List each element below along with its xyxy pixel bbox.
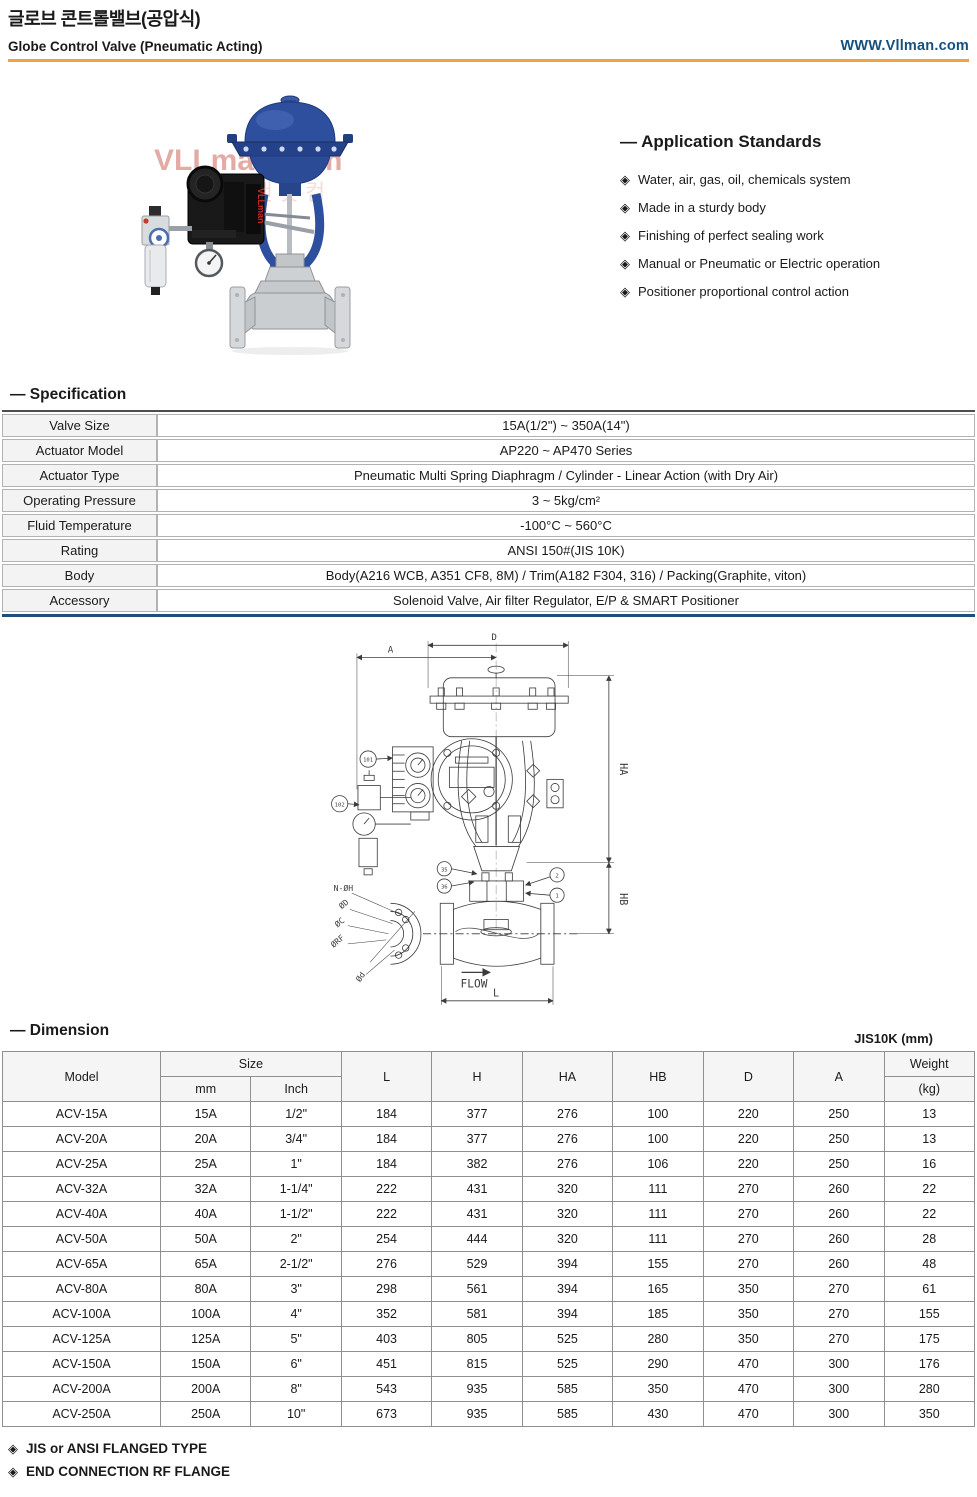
cell-hb: 155 bbox=[613, 1252, 703, 1277]
cell-h: 529 bbox=[432, 1252, 522, 1277]
cell-a: 250 bbox=[794, 1127, 884, 1152]
col-header-mm: mm bbox=[161, 1077, 251, 1102]
footnotes: ◈JIS or ANSI FLANGED TYPE◈END CONNECTION… bbox=[8, 1441, 977, 1481]
cell-weight: 13 bbox=[884, 1127, 975, 1152]
cell-size-inch: 2-1/2" bbox=[251, 1252, 341, 1277]
cell-a: 260 bbox=[794, 1202, 884, 1227]
cell-model: ACV-40A bbox=[3, 1202, 161, 1227]
cell-ha: 276 bbox=[522, 1127, 612, 1152]
diamond-bullet-icon: ◈ bbox=[620, 284, 630, 301]
cell-size-mm: 150A bbox=[161, 1352, 251, 1377]
dim-label-A: A bbox=[387, 645, 393, 655]
air-filter-regulator bbox=[142, 206, 192, 295]
standards-item: ◈Manual or Pneumatic or Electric operati… bbox=[620, 256, 977, 273]
website-url: WWW.Vllman.com bbox=[841, 38, 969, 54]
cell-weight: 48 bbox=[884, 1252, 975, 1277]
drawing-regulator bbox=[352, 770, 410, 875]
cell-ha: 525 bbox=[522, 1352, 612, 1377]
callout-2: 2 bbox=[555, 873, 558, 879]
cell-d: 350 bbox=[703, 1277, 793, 1302]
flange-label-od-small: Ød bbox=[353, 970, 367, 984]
spec-row: Actuator ModelAP220 ~ AP470 Series bbox=[2, 439, 975, 462]
spec-value: 15A(1/2") ~ 350A(14") bbox=[157, 414, 975, 437]
cell-model: ACV-50A bbox=[3, 1227, 161, 1252]
cell-l: 403 bbox=[341, 1327, 431, 1352]
cell-size-mm: 100A bbox=[161, 1302, 251, 1327]
cell-size-mm: 15A bbox=[161, 1102, 251, 1127]
spec-row: RatingANSI 150#(JIS 10K) bbox=[2, 539, 975, 562]
dimension-unit-note: JIS10K (mm) bbox=[854, 1031, 933, 1046]
dim-label-L: L bbox=[493, 989, 499, 1000]
col-header-a: A bbox=[794, 1052, 884, 1102]
positioner-brand-label: VLLman bbox=[256, 188, 266, 224]
cell-h: 805 bbox=[432, 1327, 522, 1352]
diamond-bullet-icon: ◈ bbox=[620, 256, 630, 273]
cell-hb: 430 bbox=[613, 1402, 703, 1427]
table-row: ACV-15A15A1/2"18437727610022025013 bbox=[3, 1102, 975, 1127]
cell-d: 220 bbox=[703, 1102, 793, 1127]
table-row: ACV-65A65A2-1/2"27652939415527026048 bbox=[3, 1252, 975, 1277]
dim-label-D: D bbox=[491, 633, 497, 643]
cell-model: ACV-20A bbox=[3, 1127, 161, 1152]
cell-d: 270 bbox=[703, 1252, 793, 1277]
table-row: ACV-125A125A5"403805525280350270175 bbox=[3, 1327, 975, 1352]
callout-1: 1 bbox=[555, 894, 558, 900]
cell-d: 470 bbox=[703, 1352, 793, 1377]
spec-value: Solenoid Valve, Air filter Regulator, E/… bbox=[157, 589, 975, 612]
cell-a: 260 bbox=[794, 1227, 884, 1252]
spec-row: Operating Pressure3 ~ 5kg/cm² bbox=[2, 489, 975, 512]
dimension-table: Model Size L H HA HB D A Weight mm Inch … bbox=[2, 1051, 975, 1427]
cell-ha: 585 bbox=[522, 1377, 612, 1402]
spec-row: Valve Size15A(1/2") ~ 350A(14") bbox=[2, 414, 975, 437]
cell-size-mm: 80A bbox=[161, 1277, 251, 1302]
cell-model: ACV-15A bbox=[3, 1102, 161, 1127]
col-header-ha: HA bbox=[522, 1052, 612, 1102]
cell-model: ACV-25A bbox=[3, 1152, 161, 1177]
table-row: ACV-100A100A4"352581394185350270155 bbox=[3, 1302, 975, 1327]
standards-list: ◈Water, air, gas, oil, chemicals system◈… bbox=[620, 172, 977, 300]
specification-section: — Specification Valve Size15A(1/2") ~ 35… bbox=[0, 386, 977, 617]
product-photo: VLLman.com 밸브맨닷컴 bbox=[112, 90, 532, 360]
page-title-korean: 글로브 콘트롤밸브(공압식) bbox=[8, 5, 969, 31]
cell-hb: 100 bbox=[613, 1127, 703, 1152]
drawing-positioner bbox=[431, 739, 512, 820]
cell-size-mm: 40A bbox=[161, 1202, 251, 1227]
drawing-gauge-block bbox=[392, 747, 433, 820]
spec-row: BodyBody(A216 WCB, A351 CF8, 8M) / Trim(… bbox=[2, 564, 975, 587]
cell-l: 184 bbox=[341, 1152, 431, 1177]
cell-l: 543 bbox=[341, 1377, 431, 1402]
cell-size-mm: 200A bbox=[161, 1377, 251, 1402]
cell-l: 276 bbox=[341, 1252, 431, 1277]
callout-36: 36 bbox=[440, 885, 447, 891]
spec-label: Accessory bbox=[2, 589, 157, 612]
dim-label-HB: HB bbox=[617, 893, 628, 905]
cell-hb: 165 bbox=[613, 1277, 703, 1302]
cell-weight: 22 bbox=[884, 1177, 975, 1202]
spec-label: Rating bbox=[2, 539, 157, 562]
cell-size-inch: 4" bbox=[251, 1302, 341, 1327]
standards-item: ◈Finishing of perfect sealing work bbox=[620, 228, 977, 245]
cell-model: ACV-200A bbox=[3, 1377, 161, 1402]
cell-d: 220 bbox=[703, 1127, 793, 1152]
callout-35: 35 bbox=[440, 867, 447, 873]
spec-row: AccessorySolenoid Valve, Air filter Regu… bbox=[2, 589, 975, 612]
header-accent-rule bbox=[8, 59, 969, 62]
cell-weight: 280 bbox=[884, 1377, 975, 1402]
standards-item: ◈Positioner proportional control action bbox=[620, 284, 977, 301]
standards-item-label: Made in a sturdy body bbox=[638, 200, 766, 215]
cell-a: 250 bbox=[794, 1152, 884, 1177]
cell-weight: 155 bbox=[884, 1302, 975, 1327]
cell-a: 270 bbox=[794, 1327, 884, 1352]
cell-model: ACV-250A bbox=[3, 1402, 161, 1427]
dimension-drawing: D A HA HB bbox=[321, 627, 657, 1013]
cell-model: ACV-80A bbox=[3, 1277, 161, 1302]
flange-label-orf: ØRF bbox=[328, 932, 346, 949]
cell-size-mm: 25A bbox=[161, 1152, 251, 1177]
cell-ha: 525 bbox=[522, 1327, 612, 1352]
cell-ha: 394 bbox=[522, 1277, 612, 1302]
cell-d: 350 bbox=[703, 1327, 793, 1352]
spec-label: Body bbox=[2, 564, 157, 587]
cell-h: 935 bbox=[432, 1402, 522, 1427]
cell-a: 260 bbox=[794, 1177, 884, 1202]
callout-101: 101 bbox=[363, 758, 373, 764]
diamond-bullet-icon: ◈ bbox=[620, 200, 630, 217]
cell-a: 300 bbox=[794, 1352, 884, 1377]
cell-ha: 320 bbox=[522, 1227, 612, 1252]
table-row: ACV-80A80A3"29856139416535027061 bbox=[3, 1277, 975, 1302]
cell-size-inch: 3/4" bbox=[251, 1127, 341, 1152]
cell-h: 561 bbox=[432, 1277, 522, 1302]
cell-l: 184 bbox=[341, 1102, 431, 1127]
table-row: ACV-200A200A8"543935585350470300280 bbox=[3, 1377, 975, 1402]
cell-d: 270 bbox=[703, 1177, 793, 1202]
cell-h: 382 bbox=[432, 1152, 522, 1177]
cell-hb: 100 bbox=[613, 1102, 703, 1127]
cell-size-mm: 50A bbox=[161, 1227, 251, 1252]
dim-label-HA: HA bbox=[617, 763, 628, 775]
cell-weight: 61 bbox=[884, 1277, 975, 1302]
col-header-inch: Inch bbox=[251, 1077, 341, 1102]
spec-table-body: Valve Size15A(1/2") ~ 350A(14")Actuator … bbox=[2, 414, 975, 612]
spec-value: ANSI 150#(JIS 10K) bbox=[157, 539, 975, 562]
cell-h: 377 bbox=[432, 1102, 522, 1127]
cell-a: 250 bbox=[794, 1102, 884, 1127]
cell-size-inch: 1-1/2" bbox=[251, 1202, 341, 1227]
specification-table-wrap: Valve Size15A(1/2") ~ 350A(14")Actuator … bbox=[2, 410, 975, 617]
spec-label: Operating Pressure bbox=[2, 489, 157, 512]
spec-row: Actuator TypePneumatic Multi Spring Diap… bbox=[2, 464, 975, 487]
cell-a: 300 bbox=[794, 1377, 884, 1402]
drawing-bonnet bbox=[469, 846, 523, 901]
cell-ha: 585 bbox=[522, 1402, 612, 1427]
cell-size-inch: 2" bbox=[251, 1227, 341, 1252]
cell-d: 470 bbox=[703, 1402, 793, 1427]
cell-model: ACV-125A bbox=[3, 1327, 161, 1352]
cell-size-mm: 65A bbox=[161, 1252, 251, 1277]
table-row: ACV-40A40A1-1/2"22243132011127026022 bbox=[3, 1202, 975, 1227]
cell-l: 222 bbox=[341, 1177, 431, 1202]
standards-item-label: Finishing of perfect sealing work bbox=[638, 228, 824, 243]
cell-a: 300 bbox=[794, 1402, 884, 1427]
cell-size-inch: 1" bbox=[251, 1152, 341, 1177]
diamond-bullet-icon: ◈ bbox=[8, 1464, 18, 1481]
cell-weight: 22 bbox=[884, 1202, 975, 1227]
cell-weight: 16 bbox=[884, 1152, 975, 1177]
cell-hb: 350 bbox=[613, 1377, 703, 1402]
spec-value: AP220 ~ AP470 Series bbox=[157, 439, 975, 462]
table-row: ACV-20A20A3/4"18437727610022025013 bbox=[3, 1127, 975, 1152]
cell-weight: 176 bbox=[884, 1352, 975, 1377]
col-header-d: D bbox=[703, 1052, 793, 1102]
cell-h: 444 bbox=[432, 1227, 522, 1252]
dimension-table-head: Model Size L H HA HB D A Weight mm Inch … bbox=[3, 1052, 975, 1102]
standards-item-label: Manual or Pneumatic or Electric operatio… bbox=[638, 256, 880, 271]
specification-table: Valve Size15A(1/2") ~ 350A(14")Actuator … bbox=[2, 412, 975, 614]
catalog-page: 글로브 콘트롤밸브(공압식) Globe Control Valve (Pneu… bbox=[0, 0, 977, 1497]
cell-weight: 13 bbox=[884, 1102, 975, 1127]
cell-d: 220 bbox=[703, 1152, 793, 1177]
spec-value: -100°C ~ 560°C bbox=[157, 514, 975, 537]
cell-hb: 106 bbox=[613, 1152, 703, 1177]
valve-body bbox=[230, 254, 350, 355]
table-row: ACV-32A32A1-1/4"22243132011127026022 bbox=[3, 1177, 975, 1202]
cell-d: 270 bbox=[703, 1227, 793, 1252]
spec-label: Fluid Temperature bbox=[2, 514, 157, 537]
spec-label: Actuator Type bbox=[2, 464, 157, 487]
col-header-hb: HB bbox=[613, 1052, 703, 1102]
dimension-table-body: ACV-15A15A1/2"18437727610022025013ACV-20… bbox=[3, 1102, 975, 1427]
cell-h: 581 bbox=[432, 1302, 522, 1327]
cell-h: 935 bbox=[432, 1377, 522, 1402]
col-header-model: Model bbox=[3, 1052, 161, 1102]
standards-item: ◈Made in a sturdy body bbox=[620, 200, 977, 217]
product-photo-svg: VLLman.com 밸브맨닷컴 bbox=[112, 90, 532, 360]
table-row: ACV-150A150A6"451815525290470300176 bbox=[3, 1352, 975, 1377]
cell-d: 470 bbox=[703, 1377, 793, 1402]
diamond-bullet-icon: ◈ bbox=[620, 172, 630, 189]
cell-size-mm: 250A bbox=[161, 1402, 251, 1427]
cell-a: 270 bbox=[794, 1277, 884, 1302]
col-header-h: H bbox=[432, 1052, 522, 1102]
cell-l: 298 bbox=[341, 1277, 431, 1302]
cell-size-mm: 125A bbox=[161, 1327, 251, 1352]
footnote: ◈END CONNECTION RF FLANGE bbox=[8, 1464, 977, 1481]
cell-size-inch: 1-1/4" bbox=[251, 1177, 341, 1202]
cell-weight: 28 bbox=[884, 1227, 975, 1252]
spec-label: Valve Size bbox=[2, 414, 157, 437]
cell-a: 270 bbox=[794, 1302, 884, 1327]
table-row: ACV-25A25A1"18438227610622025016 bbox=[3, 1152, 975, 1177]
page-header: 글로브 콘트롤밸브(공압식) Globe Control Valve (Pneu… bbox=[0, 0, 977, 62]
callout-102: 102 bbox=[334, 802, 344, 808]
col-header-weight-unit: (kg) bbox=[884, 1077, 975, 1102]
application-standards-title: — Application Standards bbox=[620, 132, 977, 152]
cell-l: 673 bbox=[341, 1402, 431, 1427]
cell-size-mm: 20A bbox=[161, 1127, 251, 1152]
flange-label-oc: ØC bbox=[332, 915, 346, 929]
cell-size-inch: 5" bbox=[251, 1327, 341, 1352]
cell-size-inch: 8" bbox=[251, 1377, 341, 1402]
cell-l: 451 bbox=[341, 1352, 431, 1377]
footnote-label: END CONNECTION RF FLANGE bbox=[26, 1464, 230, 1479]
table-row: ACV-250A250A10"673935585430470300350 bbox=[3, 1402, 975, 1427]
cell-d: 270 bbox=[703, 1202, 793, 1227]
col-header-weight: Weight bbox=[884, 1052, 975, 1077]
cell-model: ACV-32A bbox=[3, 1177, 161, 1202]
application-standards: — Application Standards ◈Water, air, gas… bbox=[620, 90, 977, 360]
cell-ha: 276 bbox=[522, 1102, 612, 1127]
cell-ha: 320 bbox=[522, 1177, 612, 1202]
cell-model: ACV-150A bbox=[3, 1352, 161, 1377]
positioner: VLLman bbox=[188, 167, 266, 244]
table-row: ACV-50A50A2"25444432011127026028 bbox=[3, 1227, 975, 1252]
cell-hb: 111 bbox=[613, 1177, 703, 1202]
cell-h: 431 bbox=[432, 1202, 522, 1227]
diamond-bullet-icon: ◈ bbox=[8, 1441, 18, 1458]
cell-l: 254 bbox=[341, 1227, 431, 1252]
standards-item-label: Water, air, gas, oil, chemicals system bbox=[638, 172, 851, 187]
specification-title: — Specification bbox=[10, 386, 975, 404]
cell-ha: 276 bbox=[522, 1152, 612, 1177]
diamond-bullet-icon: ◈ bbox=[620, 228, 630, 245]
pressure-gauge bbox=[196, 242, 222, 276]
cell-size-mm: 32A bbox=[161, 1177, 251, 1202]
standards-item-label: Positioner proportional control action bbox=[638, 284, 849, 299]
dimension-section: — Dimension JIS10K (mm) Model Size L H H… bbox=[0, 1022, 977, 1427]
cell-d: 350 bbox=[703, 1302, 793, 1327]
dimension-title: — Dimension bbox=[10, 1022, 109, 1040]
cell-l: 352 bbox=[341, 1302, 431, 1327]
drawing-flange-detail bbox=[347, 893, 420, 974]
cell-h: 377 bbox=[432, 1127, 522, 1152]
cell-model: ACV-65A bbox=[3, 1252, 161, 1277]
cell-size-inch: 1/2" bbox=[251, 1102, 341, 1127]
cell-size-inch: 3" bbox=[251, 1277, 341, 1302]
spec-value: Pneumatic Multi Spring Diaphragm / Cylin… bbox=[157, 464, 975, 487]
cell-size-inch: 10" bbox=[251, 1402, 341, 1427]
cell-weight: 350 bbox=[884, 1402, 975, 1427]
cell-h: 815 bbox=[432, 1352, 522, 1377]
footnote: ◈JIS or ANSI FLANGED TYPE bbox=[8, 1441, 977, 1458]
cell-ha: 394 bbox=[522, 1302, 612, 1327]
cell-l: 222 bbox=[341, 1202, 431, 1227]
cell-hb: 280 bbox=[613, 1327, 703, 1352]
flow-label: FLOW bbox=[460, 978, 487, 991]
cell-hb: 111 bbox=[613, 1227, 703, 1252]
flange-label-n-oh: N-ØH bbox=[333, 883, 353, 893]
cell-l: 184 bbox=[341, 1127, 431, 1152]
cell-hb: 290 bbox=[613, 1352, 703, 1377]
footnote-label: JIS or ANSI FLANGED TYPE bbox=[26, 1441, 207, 1456]
spec-row: Fluid Temperature-100°C ~ 560°C bbox=[2, 514, 975, 537]
col-header-size: Size bbox=[161, 1052, 342, 1077]
cell-model: ACV-100A bbox=[3, 1302, 161, 1327]
cell-size-inch: 6" bbox=[251, 1352, 341, 1377]
cell-weight: 175 bbox=[884, 1327, 975, 1352]
dimension-drawing-section: D A HA HB bbox=[0, 627, 977, 1018]
spec-label: Actuator Model bbox=[2, 439, 157, 462]
cell-a: 260 bbox=[794, 1252, 884, 1277]
page-title-english: Globe Control Valve (Pneumatic Acting) bbox=[8, 39, 263, 54]
cell-h: 431 bbox=[432, 1177, 522, 1202]
standards-item: ◈Water, air, gas, oil, chemicals system bbox=[620, 172, 977, 189]
cell-hb: 111 bbox=[613, 1202, 703, 1227]
spec-value: Body(A216 WCB, A351 CF8, 8M) / Trim(A182… bbox=[157, 564, 975, 587]
flange-label-od: ØD bbox=[336, 897, 350, 911]
cell-ha: 320 bbox=[522, 1202, 612, 1227]
cell-ha: 394 bbox=[522, 1252, 612, 1277]
spec-value: 3 ~ 5kg/cm² bbox=[157, 489, 975, 512]
col-header-l: L bbox=[341, 1052, 431, 1102]
cell-hb: 185 bbox=[613, 1302, 703, 1327]
